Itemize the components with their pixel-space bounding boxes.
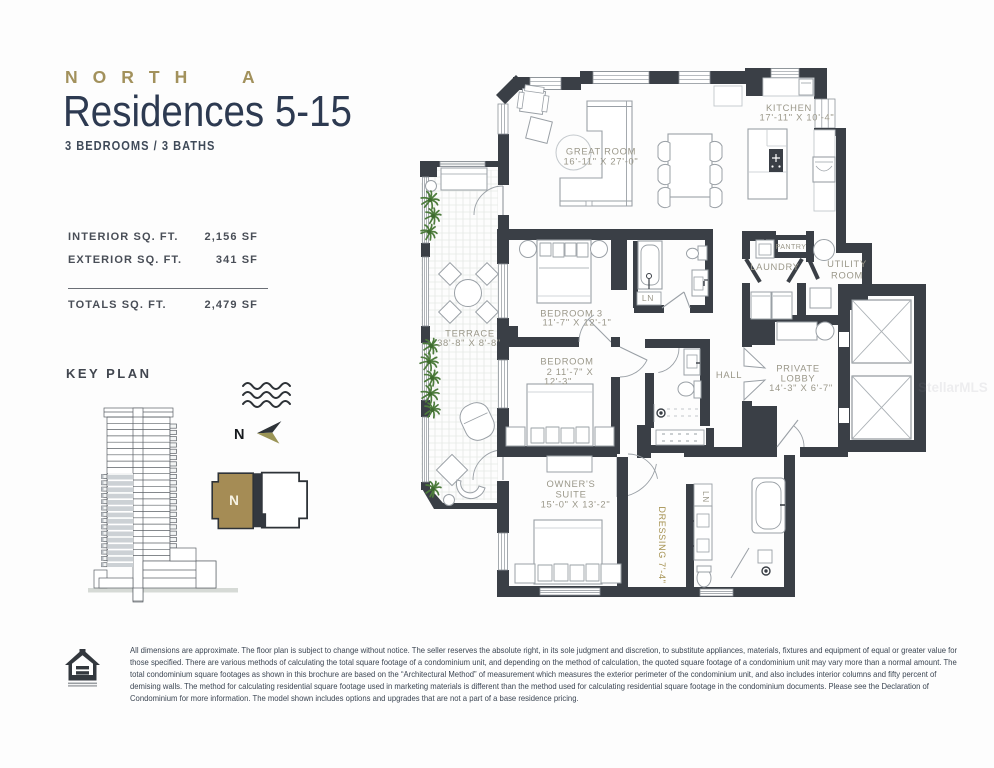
svg-text:UTILITY: UTILITY	[827, 258, 867, 269]
svg-text:LN: LN	[701, 491, 710, 503]
svg-text:HALL: HALL	[716, 369, 742, 380]
svg-text:16'-11" X 27'-0": 16'-11" X 27'-0"	[564, 156, 639, 167]
svg-text:ROOM: ROOM	[831, 270, 863, 281]
svg-text:LAUNDRY: LAUNDRY	[750, 261, 800, 272]
svg-text:17'-11" X 10'-4": 17'-11" X 10'-4"	[760, 112, 835, 123]
svg-text:15'-0" X 13'-2": 15'-0" X 13'-2"	[541, 499, 611, 510]
svg-text:12'-3": 12'-3"	[544, 375, 572, 386]
svg-text:BEDROOM: BEDROOM	[540, 356, 593, 367]
svg-text:14'-3" X 6'-7": 14'-3" X 6'-7"	[769, 382, 833, 393]
svg-text:PANTRY: PANTRY	[776, 242, 807, 251]
svg-text:LN: LN	[642, 293, 654, 303]
svg-text:OWNER'S: OWNER'S	[547, 478, 596, 489]
svg-text:38'-8" X 8'-8": 38'-8" X 8'-8"	[437, 337, 501, 348]
svg-text:N: N	[234, 427, 244, 443]
svg-text:11'-7" X 12'-1": 11'-7" X 12'-1"	[542, 317, 611, 328]
svg-text:DRESSING 7'-4": DRESSING 7'-4"	[657, 506, 667, 583]
svg-text:N: N	[229, 493, 239, 508]
